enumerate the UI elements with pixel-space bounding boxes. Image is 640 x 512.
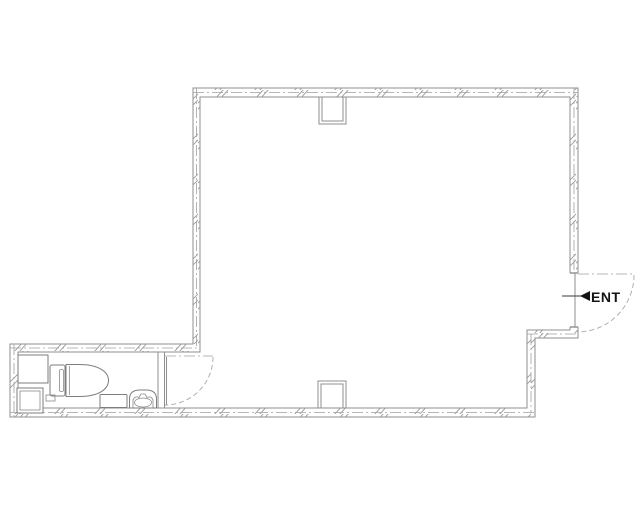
toilet-bowl (66, 365, 109, 397)
column-bottom (318, 381, 346, 408)
toilet (46, 365, 109, 402)
bathroom-door-swing-arc (165, 357, 213, 405)
entrance-arrow-icon (580, 291, 590, 301)
column-top (319, 97, 346, 124)
pipe-shaft (17, 388, 43, 413)
hand-basin (130, 390, 157, 408)
corner-counter (18, 355, 48, 383)
bathroom-partition-wall (158, 352, 165, 408)
wall-inner-boundary (18, 97, 570, 408)
low-cabinet (100, 395, 127, 408)
floor-plan-canvas: ENT (0, 0, 640, 512)
floor-plan-page: ENT (0, 0, 640, 512)
entrance-marker: ENT (562, 289, 621, 305)
bathroom (17, 352, 213, 413)
entrance-door: ENT (562, 273, 634, 332)
entrance-label: ENT (591, 289, 621, 305)
